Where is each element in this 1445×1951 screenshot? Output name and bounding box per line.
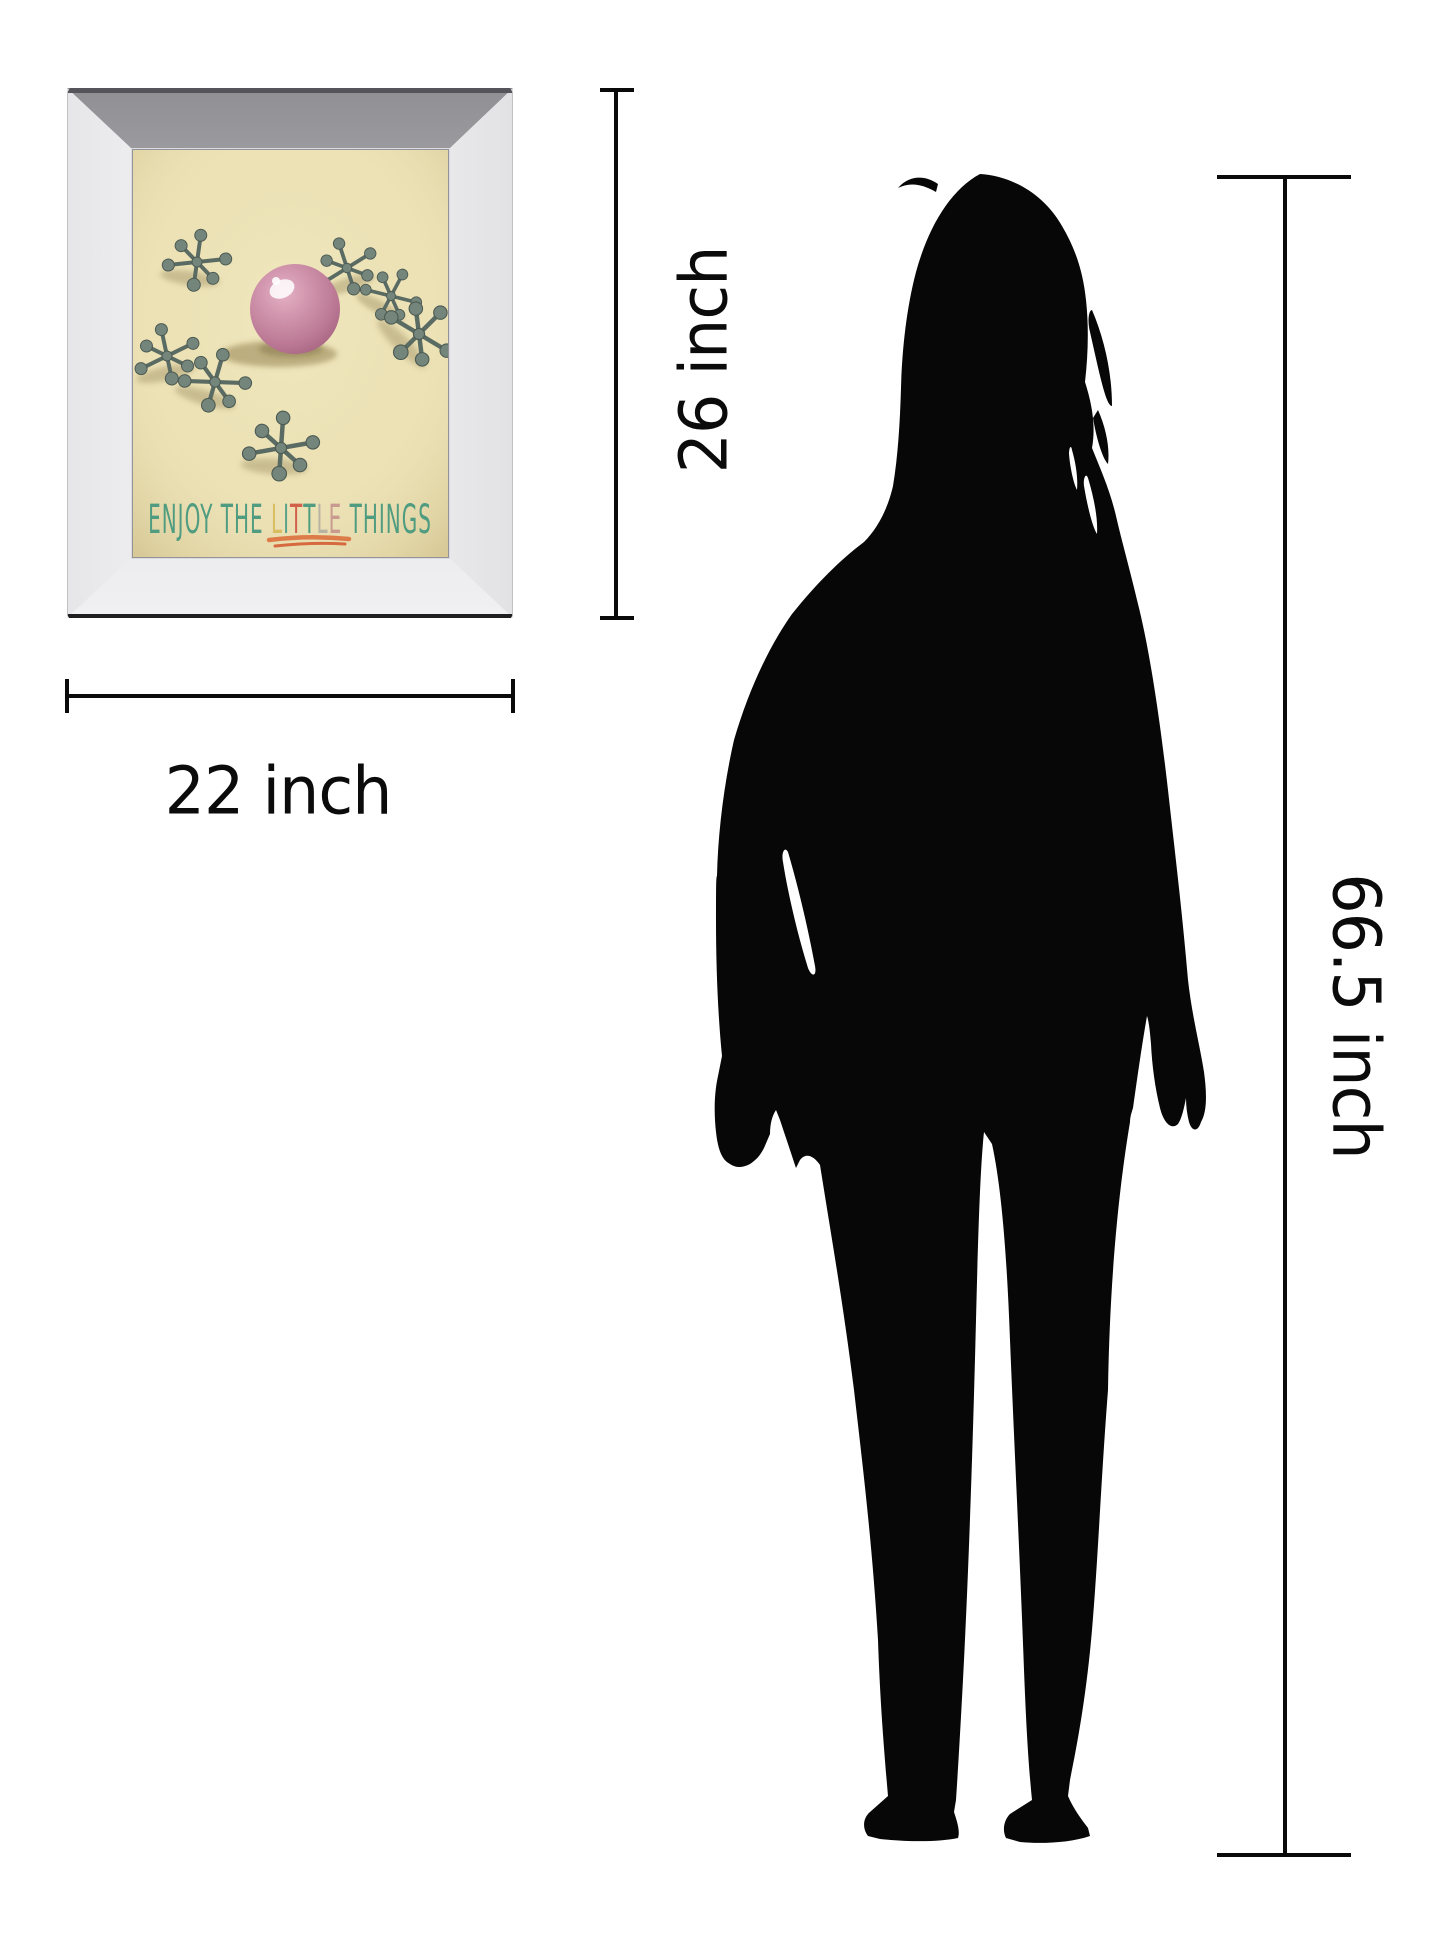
mirror-frame: ENJOY THE LITTLE THINGS <box>67 88 513 618</box>
frame-artwork: ENJOY THE LITTLE THINGS <box>133 150 448 557</box>
artwork-caption: ENJOY THE LITTLE THINGS <box>148 498 432 546</box>
dimension-bar <box>65 694 515 698</box>
dimension-cap-right <box>511 679 515 713</box>
person-silhouette <box>640 160 1240 1860</box>
dimension-cap-left <box>65 679 69 713</box>
frame-left-edge <box>67 92 68 615</box>
silhouette-hair-wisp-top <box>898 178 938 192</box>
frame-bottom-edge <box>67 614 513 618</box>
dimension-cap-bottom <box>600 616 634 620</box>
dimension-line-frame-width <box>65 679 515 713</box>
size-comparison-image: ENJOY THE LITTLE THINGS 22 inch 26 inch … <box>0 0 1445 1951</box>
person-height-label: 66.5 inch <box>1318 873 1395 1158</box>
dimension-bar <box>614 88 618 620</box>
dimension-cap-top <box>600 88 634 92</box>
dimension-bar <box>1283 175 1287 1857</box>
frame-top-edge <box>67 88 513 93</box>
silhouette-body <box>715 174 1206 1843</box>
dimension-line-frame-height <box>600 88 634 620</box>
frame-right-edge <box>512 92 513 615</box>
frame-width-label: 22 inch <box>165 753 392 830</box>
